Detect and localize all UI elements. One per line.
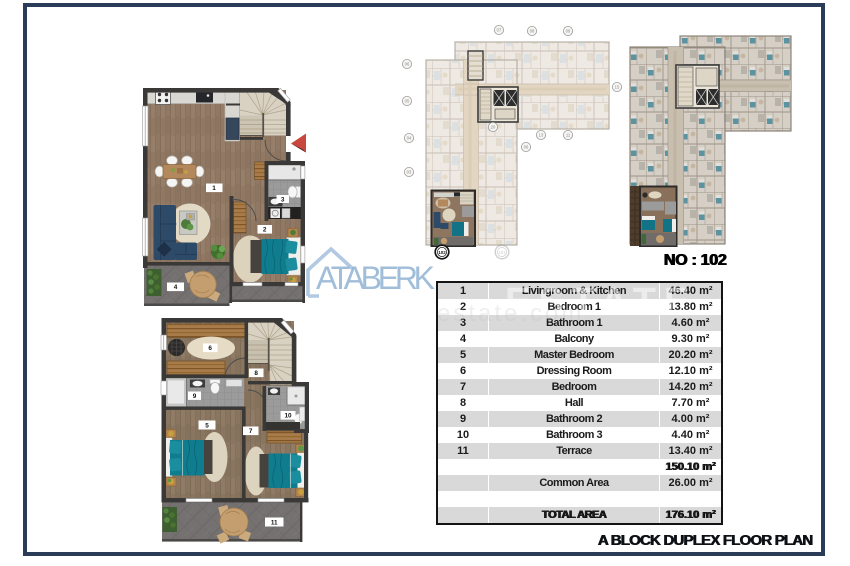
svg-text:20: 20	[491, 125, 496, 130]
svg-text:09: 09	[566, 29, 571, 34]
svg-text:5: 5	[205, 423, 209, 430]
svg-text:ATABERK: ATABERK	[316, 260, 435, 296]
svg-text:04: 04	[407, 136, 412, 141]
svg-text:1: 1	[212, 185, 216, 192]
svg-text:15: 15	[615, 85, 620, 90]
svg-text:101: 101	[498, 250, 506, 255]
svg-text:3: 3	[281, 196, 285, 203]
svg-text:08: 08	[530, 29, 535, 34]
svg-text:06: 06	[405, 62, 410, 67]
svg-text:13: 13	[539, 133, 544, 138]
svg-text:9: 9	[193, 393, 197, 400]
svg-text:06: 06	[524, 145, 529, 150]
svg-text:7: 7	[249, 428, 253, 435]
svg-text:05: 05	[405, 99, 410, 104]
svg-text:03: 03	[407, 170, 412, 175]
svg-text:102: 102	[438, 250, 446, 255]
svg-text:11: 11	[271, 520, 278, 527]
svg-text:10: 10	[284, 413, 292, 420]
svg-text:6: 6	[208, 345, 212, 352]
svg-text:11: 11	[566, 133, 571, 138]
svg-text:8: 8	[254, 370, 258, 377]
svg-text:2: 2	[263, 227, 267, 234]
svg-text:07: 07	[497, 28, 502, 33]
svg-text:4: 4	[174, 284, 178, 291]
